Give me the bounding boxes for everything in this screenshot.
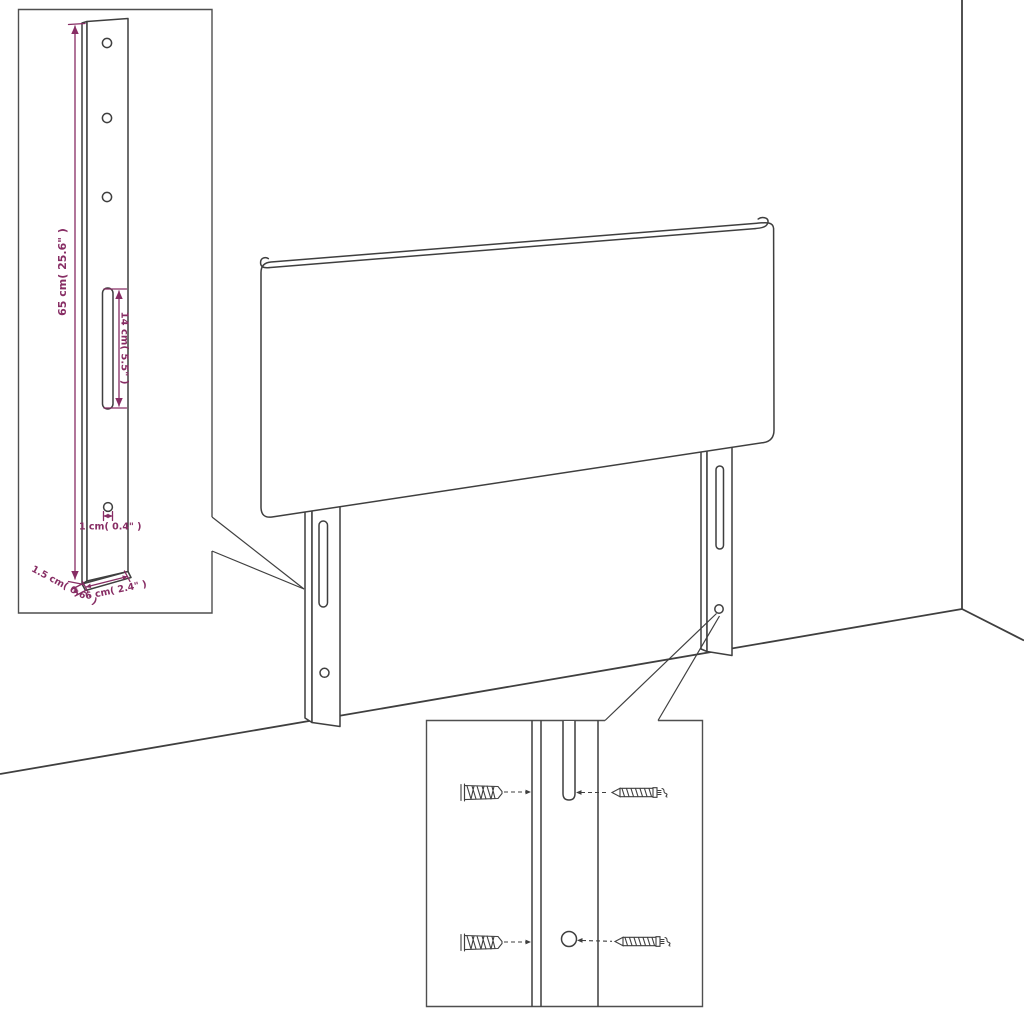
callout-line bbox=[212, 517, 304, 589]
mounting-hole bbox=[715, 605, 723, 613]
screw-icon bbox=[612, 788, 667, 798]
assembly-diagram: 65 cm( 25.6" ) 14 cm( 5.5" ) 1 cm( 0.4" … bbox=[0, 0, 1024, 1024]
screw-hole bbox=[102, 113, 111, 122]
dimension-label-height: 65 cm( 25.6" ) bbox=[56, 228, 69, 316]
bracket-closeup bbox=[532, 721, 598, 1006]
hardware-leader-lines bbox=[504, 790, 612, 945]
dimension-label-slot-length: 14 cm( 5.5" ) bbox=[119, 312, 130, 385]
wall-plug-icon bbox=[461, 784, 502, 801]
leader-arrow bbox=[576, 790, 582, 795]
mounting-hole bbox=[104, 503, 113, 512]
leader-arrow bbox=[526, 790, 532, 795]
leader-arrow bbox=[526, 940, 532, 945]
mounting-hole bbox=[562, 932, 577, 947]
screw-hole bbox=[102, 192, 111, 201]
assembly-diagram-svg: 65 cm( 25.6" ) 14 cm( 5.5" ) 1 cm( 0.4" … bbox=[0, 0, 1024, 1024]
bracket-drawing bbox=[82, 19, 131, 591]
callout-line bbox=[212, 551, 304, 589]
screw-icon bbox=[615, 937, 670, 947]
mounting-hole bbox=[320, 668, 329, 677]
wall-plug-icon bbox=[461, 934, 502, 951]
mounting-slot bbox=[563, 721, 575, 800]
headboard-panel bbox=[261, 218, 774, 518]
dimension-label-hole-diameter: 1 cm( 0.4" ) bbox=[79, 522, 142, 533]
leader-arrow bbox=[577, 938, 583, 943]
floor-line-left bbox=[0, 609, 962, 774]
mounting-detail-inset bbox=[427, 614, 720, 1007]
callout-line bbox=[658, 616, 720, 721]
floor-line-right bbox=[962, 609, 1024, 641]
screw-hole bbox=[102, 38, 111, 47]
mounting-slot bbox=[103, 288, 114, 409]
mounting-slot bbox=[716, 466, 724, 549]
mounting-slot bbox=[319, 521, 328, 607]
